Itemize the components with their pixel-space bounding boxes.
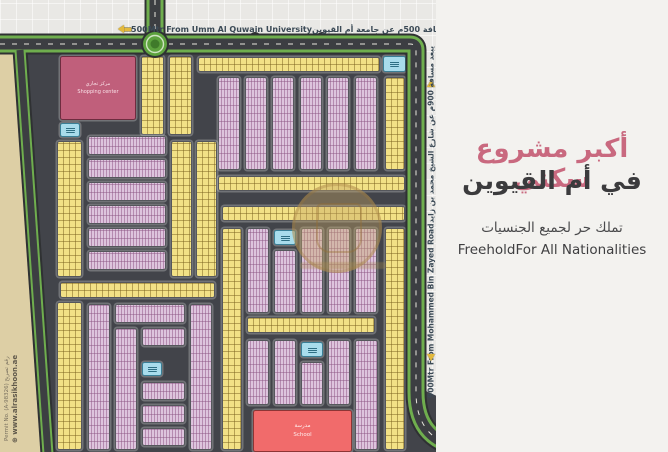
top-road-label: 500Mtr From Umm Al Quwain University يبع… bbox=[118, 23, 396, 35]
subline-english: FreeholdFor All Nationalities bbox=[436, 242, 668, 258]
arrow-left-icon bbox=[118, 25, 131, 33]
website-url: ⊕ www.alrasikhoon.ae bbox=[11, 348, 19, 450]
headline2-arabic: في أم القيوين bbox=[436, 166, 668, 195]
subline-arabic: تملك حر لجميع الجنسيات bbox=[436, 220, 668, 236]
arrow-down-icon bbox=[427, 354, 435, 361]
footer-credits: Permit No. (A-98326) رقم تصريح ⊕ www.alr… bbox=[4, 348, 26, 450]
right-road-label-en: 900Mtr From Mohammed Bin Zayed Road bbox=[427, 223, 436, 397]
watermark-text-smudge bbox=[300, 262, 386, 269]
permit-number: Permit No. (A-98326) رقم تصريح bbox=[4, 348, 10, 450]
flyer-canvas: مركز تجاريShopping centerمدرسةSchool bbox=[0, 0, 668, 452]
top-road-label-en: 500Mtr From Umm Al Quwain University bbox=[131, 25, 312, 34]
ad-panel: أكبر مشروع سكني في أم القيوين تملك حر لج… bbox=[436, 0, 668, 452]
right-road-label-ar: يبعد مسافة 900م عن شارع الشيخ محمد بن زا… bbox=[427, 46, 436, 223]
watermark-logo-icon bbox=[316, 203, 362, 253]
